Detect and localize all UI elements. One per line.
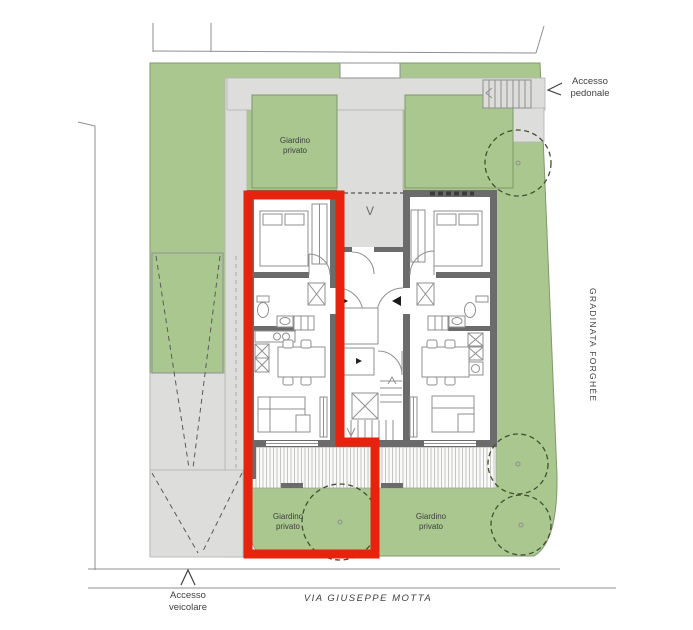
label-via-giuseppe-motta: VIA GIUSEPPE MOTTA: [288, 593, 448, 605]
street-lines: [88, 569, 616, 588]
site-plan: Accesso pedonale Giardino privato Giardi…: [0, 0, 693, 630]
label-giardino-privato-top: Giardino privato: [272, 136, 318, 157]
vehicle-access-arrow-icon: [181, 570, 195, 585]
garden-top-right: [405, 95, 513, 188]
label-accesso-pedonale: Accesso pedonale: [560, 76, 620, 101]
building: [247, 190, 497, 447]
label-giardino-privato-bottom-right: Giardino privato: [408, 512, 454, 533]
entrance-stairs: [483, 80, 531, 108]
entry-platform: [340, 63, 400, 78]
label-gradinata-forghee: GRADINATA FORGHÉE: [587, 288, 598, 408]
label-vestibolo: V: [363, 204, 377, 220]
label-giardino-privato-bottom-left: Giardino privato: [265, 512, 311, 533]
label-accesso-veicolare: Accesso veicolare: [160, 590, 216, 615]
